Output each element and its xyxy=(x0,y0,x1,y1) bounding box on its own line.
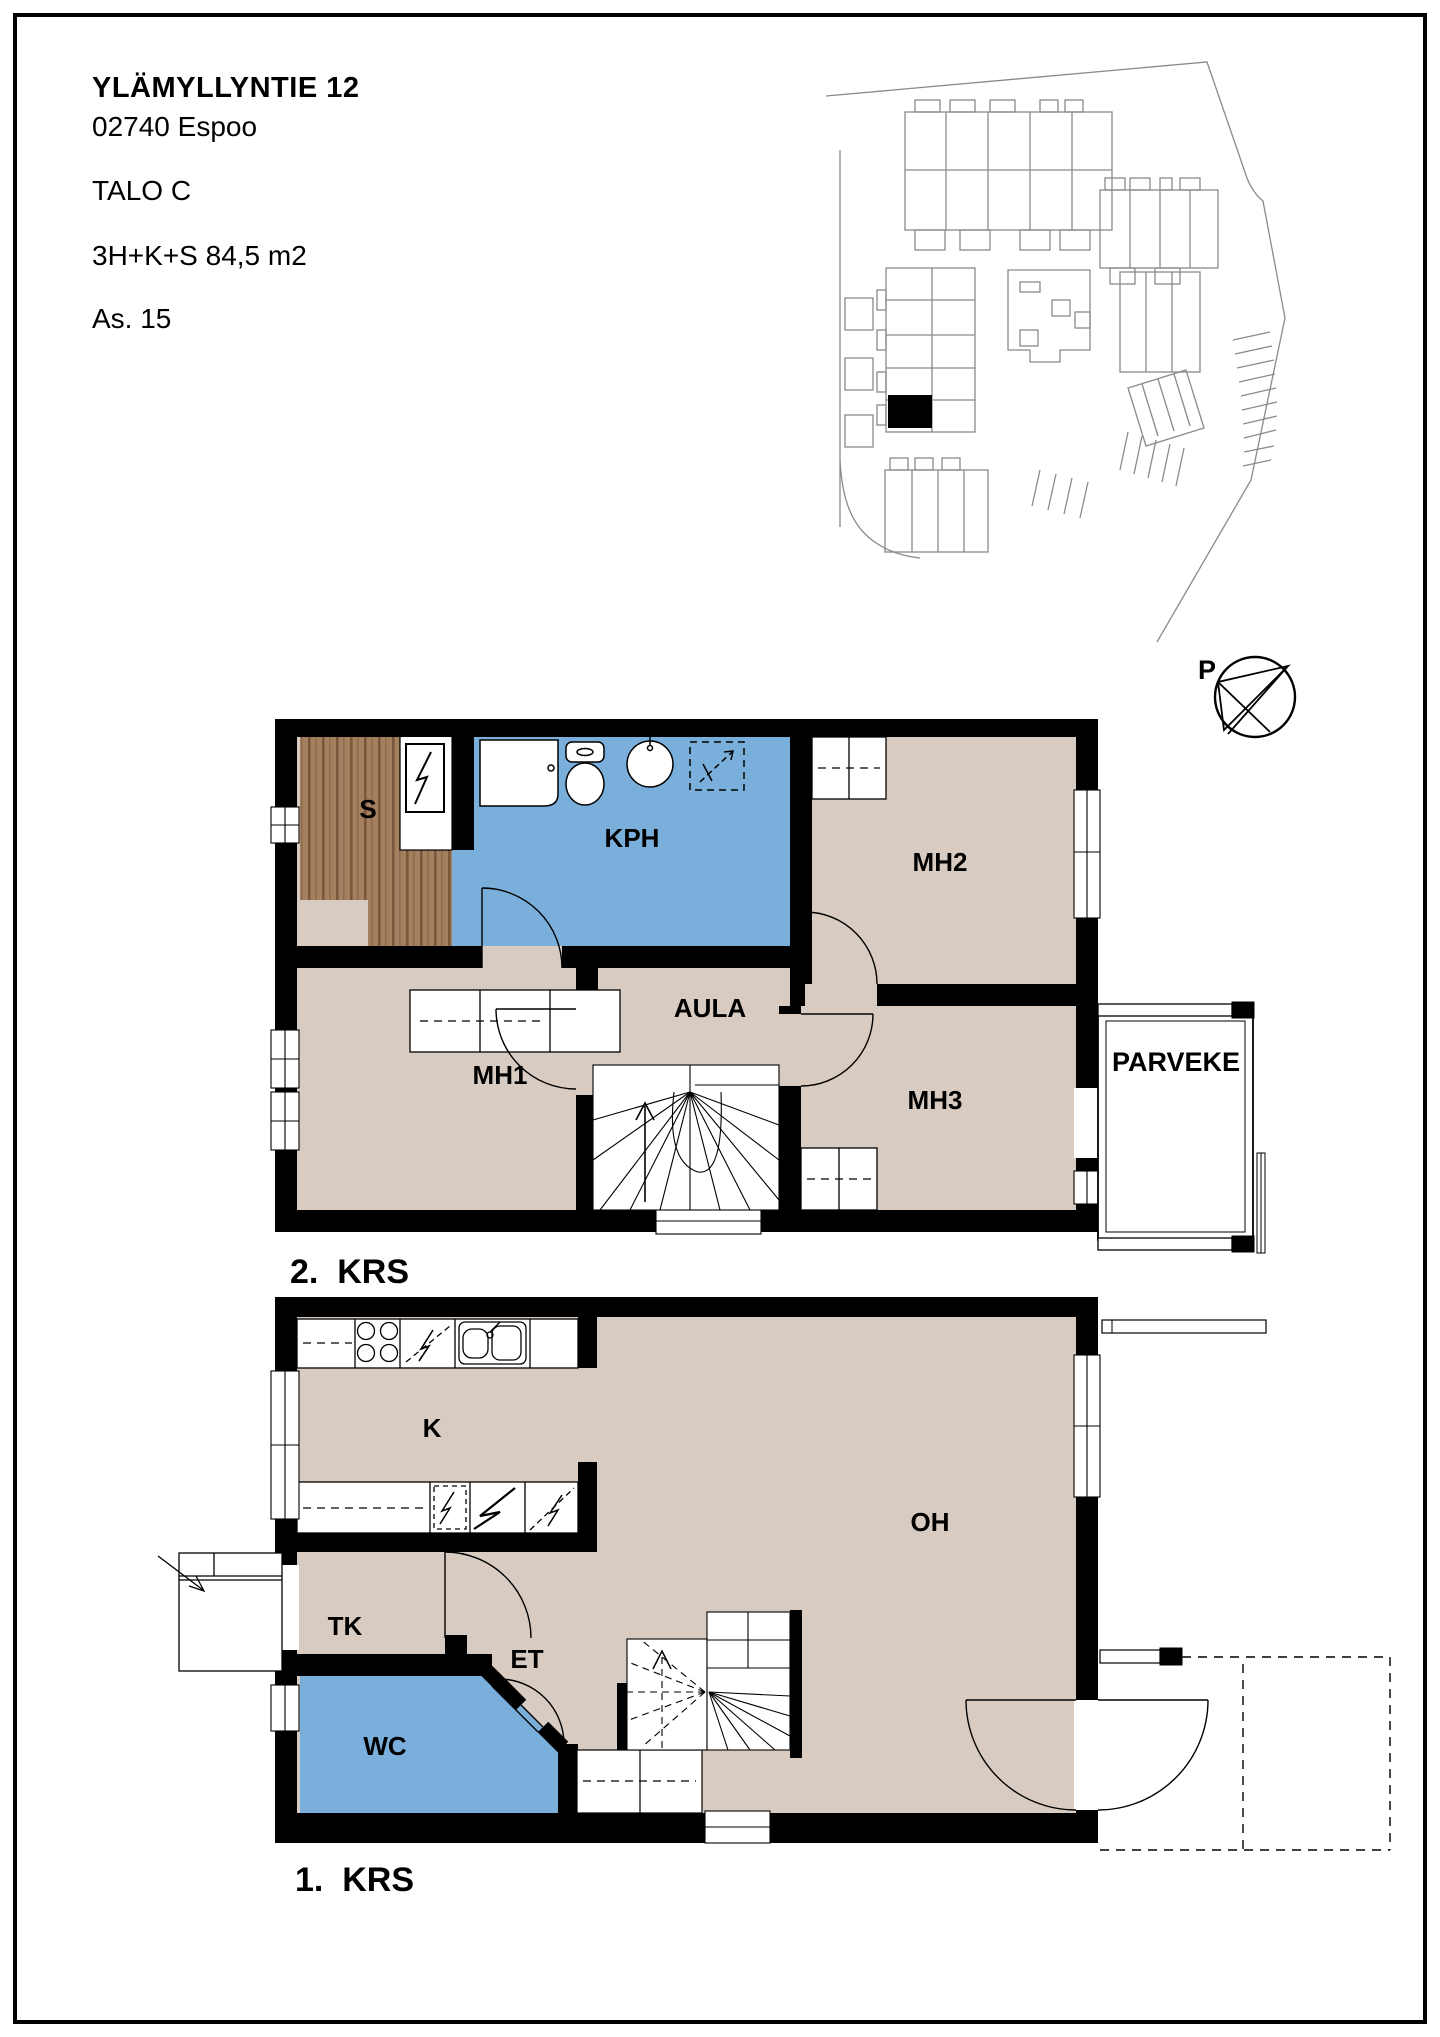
entry-closets xyxy=(577,1750,702,1813)
room-label-tk: TK xyxy=(328,1611,363,1641)
room-label-oh: OH xyxy=(911,1507,950,1537)
kitchen-counter-bottom xyxy=(297,1482,578,1533)
floor2-plan: S KPH MH2 MH1 AULA MH3 PARVEKE 2. KRS xyxy=(271,719,1265,1291)
room-label-aula: AULA xyxy=(674,993,746,1023)
room-label-parveke: PARVEKE xyxy=(1112,1047,1240,1077)
faucet-icon xyxy=(548,765,554,771)
north-arrow-icon xyxy=(1218,666,1288,734)
site-plan xyxy=(826,62,1285,642)
floor2-label: 2. KRS xyxy=(290,1253,409,1291)
compass: P xyxy=(1198,655,1295,737)
compass-label: P xyxy=(1198,655,1216,685)
room-label-mh1: MH1 xyxy=(473,1060,528,1090)
terrace-dashed-outline xyxy=(1100,1657,1390,1850)
compass-circle xyxy=(1215,657,1295,737)
room-label-mh2: MH2 xyxy=(913,847,968,877)
room-label-kph: KPH xyxy=(605,823,660,853)
floor1-label: 1. KRS xyxy=(295,1861,414,1899)
sauna-heater-icon xyxy=(406,744,444,812)
plan-drawing: P xyxy=(0,0,1440,2037)
room-label-et: ET xyxy=(510,1644,543,1674)
floor1-plan: K OH TK ET WC 1. KRS xyxy=(158,1297,1390,1899)
room-label-k: K xyxy=(423,1413,442,1443)
room-label-wc: WC xyxy=(363,1731,407,1761)
kitchen-sink-icon xyxy=(459,1322,526,1364)
site-highlight-unit xyxy=(888,395,932,428)
floor2-balcony xyxy=(1098,1002,1265,1253)
floorplan-page: YLÄMYLLYNTIE 12 02740 Espoo TALO C 3H+K+… xyxy=(0,0,1440,2037)
washbasin-counter xyxy=(480,740,558,806)
floor2-stairs xyxy=(593,1065,779,1210)
room-label-sauna: S xyxy=(359,794,376,824)
toilet-icon xyxy=(566,742,604,805)
floor1-exterior xyxy=(1100,1320,1390,1850)
kitchen-counter-top xyxy=(297,1319,578,1368)
room-label-mh3: MH3 xyxy=(908,1085,963,1115)
entrance-porch xyxy=(158,1553,282,1671)
